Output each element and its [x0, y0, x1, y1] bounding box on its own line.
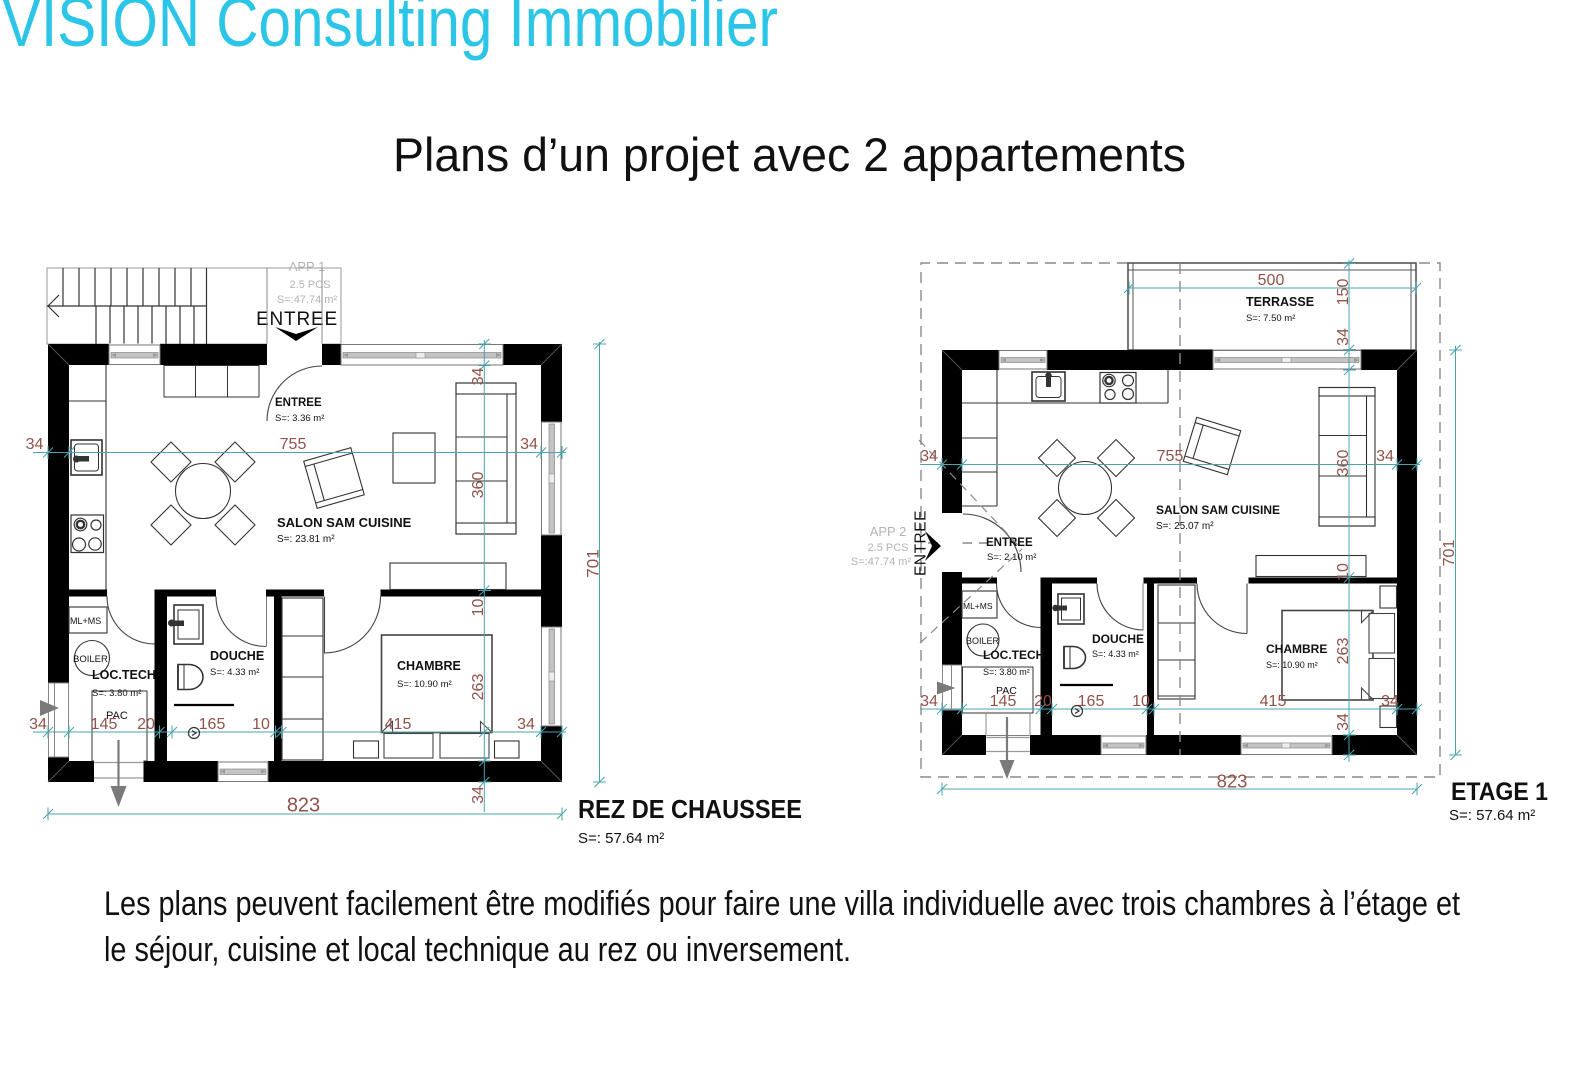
svg-text:APP 2: APP 2 — [870, 524, 907, 539]
svg-text:34: 34 — [920, 448, 938, 465]
svg-text:SALON SAM CUISINE: SALON SAM CUISINE — [1156, 503, 1280, 517]
svg-text:20: 20 — [1034, 693, 1052, 710]
svg-text:360: 360 — [1335, 450, 1352, 477]
svg-text:le séjour, cuisine et local te: le séjour, cuisine et local technique au… — [104, 931, 851, 969]
svg-text:TERRASSE: TERRASSE — [1246, 295, 1314, 309]
svg-text:BOILER: BOILER — [966, 636, 1000, 646]
svg-text:S=: 3.36 m²: S=: 3.36 m² — [275, 413, 324, 424]
svg-text:10: 10 — [252, 716, 270, 733]
svg-text:CHAMBRE: CHAMBRE — [397, 659, 461, 673]
svg-text:263: 263 — [1335, 638, 1352, 665]
svg-text:701: 701 — [1441, 540, 1458, 567]
svg-text:34: 34 — [1376, 448, 1394, 465]
svg-text:145: 145 — [990, 693, 1017, 710]
svg-text:34: 34 — [517, 716, 535, 733]
svg-text:ML+MS: ML+MS — [963, 601, 993, 611]
svg-text:755: 755 — [1157, 448, 1184, 465]
svg-text:34: 34 — [1335, 713, 1352, 731]
svg-text:ENTREE: ENTREE — [986, 537, 1033, 549]
svg-text:S=: 25.07 m²: S=: 25.07 m² — [1156, 521, 1214, 532]
svg-text:S=: 57.64 m²: S=: 57.64 m² — [1449, 807, 1535, 824]
svg-text:SALON SAM CUISINE: SALON SAM CUISINE — [277, 515, 412, 530]
svg-text:LOC.TECH: LOC.TECH — [983, 648, 1044, 662]
svg-text:2.5 PCS: 2.5 PCS — [290, 279, 331, 291]
svg-text:S=:47.74 m²: S=:47.74 m² — [851, 556, 912, 568]
svg-text:S=: 23.81 m²: S=: 23.81 m² — [277, 534, 335, 545]
svg-text:823: 823 — [287, 795, 320, 817]
svg-text:DOUCHE: DOUCHE — [210, 649, 264, 663]
svg-text:REZ DE CHAUSSEE: REZ DE CHAUSSEE — [578, 794, 802, 824]
svg-text:2.5 PCS: 2.5 PCS — [868, 542, 909, 554]
svg-text:S=: 2.10 m²: S=: 2.10 m² — [987, 552, 1036, 563]
svg-text:APP 1: APP 1 — [289, 259, 326, 274]
svg-text:S=: 57.64 m²: S=: 57.64 m² — [578, 830, 664, 847]
svg-text:S=: 3.80 m²: S=: 3.80 m² — [92, 688, 141, 699]
svg-text:10: 10 — [1335, 563, 1352, 581]
svg-text:34: 34 — [470, 368, 487, 386]
svg-text:ENTREE: ENTREE — [913, 510, 930, 576]
svg-text:263: 263 — [470, 674, 487, 701]
svg-text:360: 360 — [470, 472, 487, 499]
svg-text:34: 34 — [29, 716, 47, 733]
svg-text:10: 10 — [1132, 693, 1150, 710]
svg-text:S=:47.74 m²: S=:47.74 m² — [277, 294, 338, 306]
svg-text:ETAGE 1: ETAGE 1 — [1451, 778, 1548, 806]
svg-text:755: 755 — [280, 436, 307, 453]
svg-text:CHAMBRE: CHAMBRE — [1266, 642, 1327, 656]
svg-text:VISION Consulting Immobilier: VISION Consulting Immobilier — [2, 0, 778, 61]
svg-text:S=: 4.33 m²: S=: 4.33 m² — [210, 667, 259, 678]
svg-text:ML+MS: ML+MS — [70, 616, 101, 626]
svg-text:ENTREE: ENTREE — [256, 309, 338, 330]
svg-text:500: 500 — [1258, 272, 1285, 289]
svg-text:S=: 10.90 m²: S=: 10.90 m² — [1266, 660, 1318, 670]
svg-text:34: 34 — [920, 693, 938, 710]
svg-text:BOILER: BOILER — [73, 654, 108, 665]
svg-text:DOUCHE: DOUCHE — [1092, 632, 1144, 646]
svg-text:S=: 3.80 m²: S=: 3.80 m² — [983, 667, 1030, 677]
svg-text:ENTREE: ENTREE — [275, 397, 322, 409]
svg-text:S=: 7.50 m²: S=: 7.50 m² — [1246, 313, 1295, 324]
svg-text:20: 20 — [137, 716, 155, 733]
svg-text:34: 34 — [520, 436, 538, 453]
svg-text:Plans d’un projet avec 2 appar: Plans d’un projet avec 2 appartements — [393, 128, 1186, 181]
svg-text:10: 10 — [470, 599, 487, 617]
svg-text:34: 34 — [470, 786, 487, 804]
svg-text:34: 34 — [1381, 693, 1399, 710]
svg-text:145: 145 — [91, 716, 118, 733]
svg-text:823: 823 — [1217, 771, 1248, 792]
svg-text:34: 34 — [1335, 328, 1352, 346]
svg-text:415: 415 — [385, 716, 412, 733]
svg-text:150: 150 — [1335, 279, 1352, 306]
svg-text:S=: 10.90 m²: S=: 10.90 m² — [397, 679, 452, 690]
svg-text:LOC.TECH: LOC.TECH — [92, 668, 156, 682]
svg-text:S=: 4.33 m²: S=: 4.33 m² — [1092, 649, 1139, 659]
svg-text:34: 34 — [26, 436, 44, 453]
svg-text:165: 165 — [199, 716, 226, 733]
svg-text:Les plans peuvent facilement ê: Les plans peuvent facilement être modifi… — [104, 885, 1460, 923]
svg-text:415: 415 — [1260, 693, 1287, 710]
svg-text:701: 701 — [584, 549, 603, 577]
